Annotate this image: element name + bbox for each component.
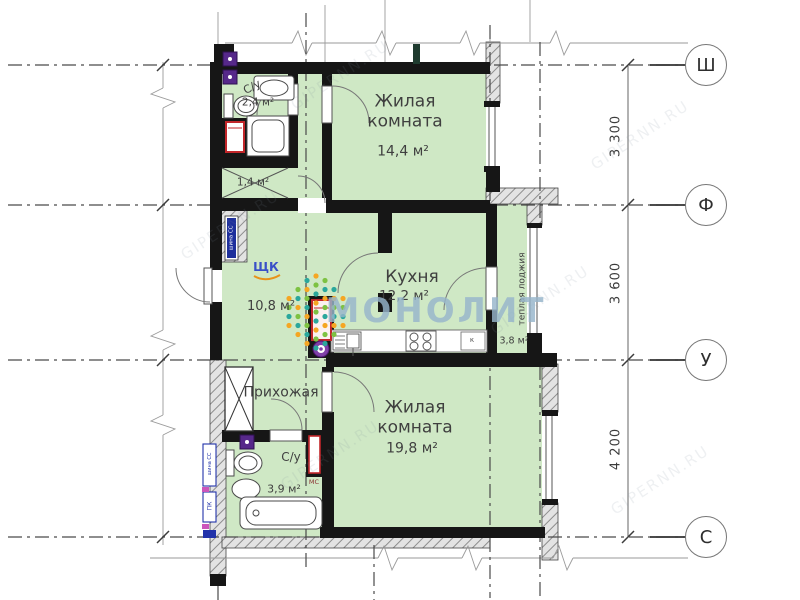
room-area-closet: 1,4 м² [237,177,269,190]
floorplan-page: GIPERNN.RU GIPERNN.RU GIPERNN.RU GIPERNN… [0,0,800,600]
room-label-entry: Прихожая [244,385,319,402]
room-area-bathroom-bottom: 3,9 м² [267,482,301,495]
axis-bubble-f: Ф [685,184,727,226]
monolit-watermark: МОНОЛИТ [326,291,547,331]
room-label-living-top: Жилая комната [340,92,470,133]
ms-annotation: МС [309,479,319,487]
dimension-sh-f: 3 300 [609,115,624,157]
k-annotation: к [470,336,474,344]
axis-bubble-s: С [685,516,727,558]
dimension-f-u: 3 600 [609,262,624,304]
dimension-u-s: 4 200 [609,428,624,470]
room-area-living-bottom: 19,8 м² [386,441,438,458]
room-label-bathroom-bottom: С/у [281,450,301,464]
panel-label-top: шина СС [228,225,235,250]
room-area-living-top: 14,4 м² [377,144,429,161]
room-label-living-bottom: Жилая комната [350,398,480,439]
room-area-hall: 10,8 м² [247,299,295,315]
axis-bubble-sh: Ш [685,44,727,86]
shk-annotation: ЩК [253,260,279,274]
axis-bubble-u: У [685,339,727,381]
panel-label-bottom: шина СС [207,453,213,476]
room-area-loggia: 3,8 м² [499,335,528,346]
room-label-kitchen: Кухня [385,267,439,287]
room-area-bathroom-top: 2,4 м² [242,97,274,110]
pk-annotation: ПК [206,502,213,511]
